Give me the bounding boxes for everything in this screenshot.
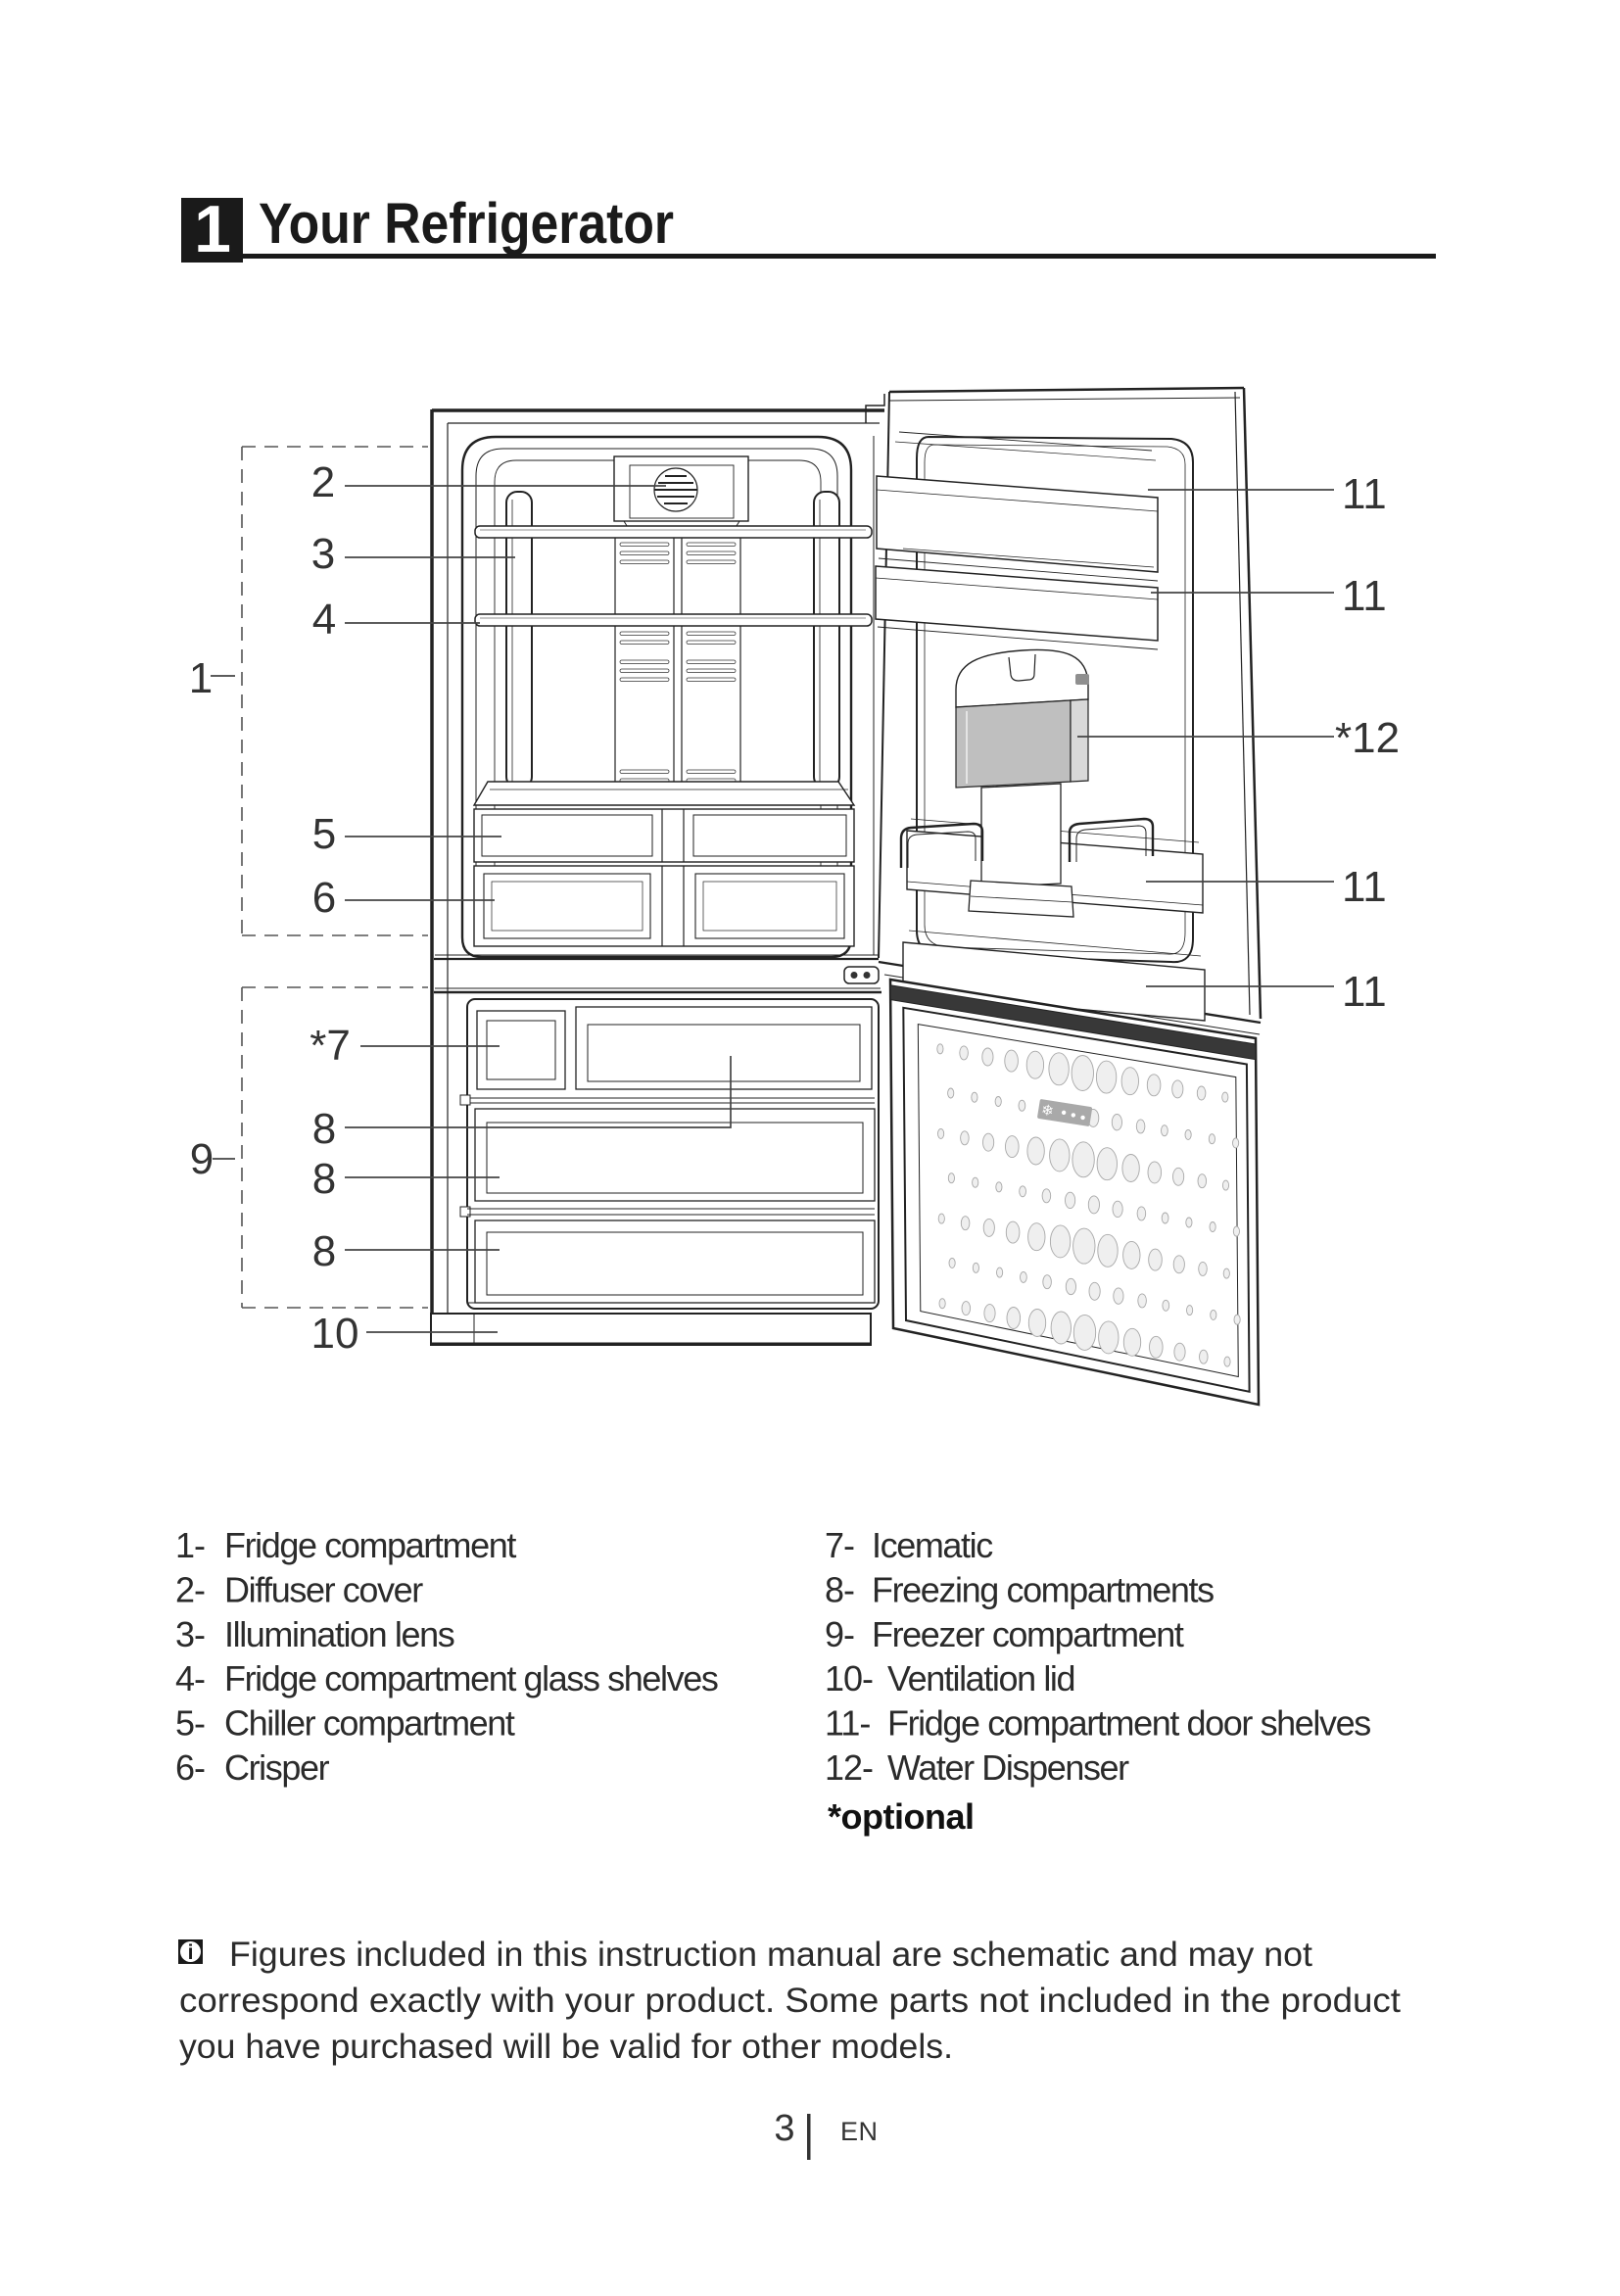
svg-text:1-: 1-	[175, 1525, 205, 1565]
svg-text:Icematic: Icematic	[872, 1525, 993, 1565]
svg-text:Freezing compartments: Freezing compartments	[872, 1569, 1214, 1609]
svg-text:10: 10	[311, 1310, 359, 1358]
svg-text:Your Refrigerator: Your Refrigerator	[259, 192, 674, 256]
svg-text:6: 6	[312, 874, 336, 922]
svg-text:*7: *7	[310, 1022, 351, 1070]
svg-text:1: 1	[194, 192, 231, 266]
svg-text:*12: *12	[1335, 714, 1400, 762]
svg-text:4: 4	[312, 596, 336, 644]
svg-text:*optional: *optional	[828, 1796, 974, 1837]
svg-text:Fridge compartment glass shelv: Fridge compartment glass shelves	[224, 1658, 718, 1698]
svg-text:EN: EN	[840, 2117, 879, 2146]
svg-text:Illumination lens: Illumination lens	[224, 1614, 454, 1654]
svg-text:12-: 12-	[825, 1747, 873, 1788]
svg-text:6-: 6-	[175, 1747, 205, 1788]
svg-text:1: 1	[189, 654, 213, 702]
svg-text:11: 11	[1342, 572, 1387, 620]
svg-text:7-: 7-	[825, 1525, 854, 1565]
svg-text:11: 11	[1342, 863, 1387, 911]
svg-text:❄: ❄	[1040, 1102, 1055, 1121]
svg-text:11: 11	[1342, 470, 1387, 518]
svg-text:Fridge compartment door shelve: Fridge compartment door shelves	[887, 1703, 1370, 1744]
svg-text:Freezer compartment: Freezer compartment	[872, 1614, 1184, 1654]
svg-text:correspond exactly with your p: correspond exactly with your product. So…	[179, 1981, 1401, 2020]
svg-text:8: 8	[312, 1105, 336, 1153]
svg-text:you have purchased will be val: you have purchased will be valid for oth…	[179, 2027, 953, 2066]
svg-text:2-: 2-	[175, 1569, 205, 1609]
svg-text:3: 3	[774, 2108, 794, 2149]
svg-text:Crisper: Crisper	[224, 1747, 330, 1788]
svg-text:3: 3	[311, 530, 335, 578]
svg-text:2: 2	[311, 458, 335, 506]
svg-text:Diffuser cover: Diffuser cover	[224, 1569, 423, 1609]
svg-text:Figures included in this instr: Figures included in this instruction man…	[229, 1935, 1312, 1974]
svg-text:5-: 5-	[175, 1703, 205, 1744]
svg-text:11: 11	[1342, 968, 1387, 1016]
svg-text:8: 8	[312, 1155, 336, 1203]
svg-text:11-: 11-	[825, 1703, 870, 1744]
svg-text:9: 9	[190, 1135, 214, 1183]
svg-text:4-: 4-	[175, 1658, 205, 1698]
svg-text:9-: 9-	[825, 1614, 854, 1654]
svg-text:Chiller compartment: Chiller compartment	[224, 1703, 515, 1744]
svg-text:Water Dispenser: Water Dispenser	[887, 1747, 1129, 1788]
svg-text:3-: 3-	[175, 1614, 205, 1654]
svg-text:10-: 10-	[825, 1658, 873, 1698]
svg-text:i: i	[188, 1941, 194, 1964]
svg-text:Fridge compartment: Fridge compartment	[224, 1525, 516, 1565]
svg-text:5: 5	[312, 810, 336, 858]
svg-text:Ventilation lid: Ventilation lid	[887, 1658, 1074, 1698]
svg-text:8-: 8-	[825, 1569, 854, 1609]
svg-text:8: 8	[312, 1227, 336, 1275]
